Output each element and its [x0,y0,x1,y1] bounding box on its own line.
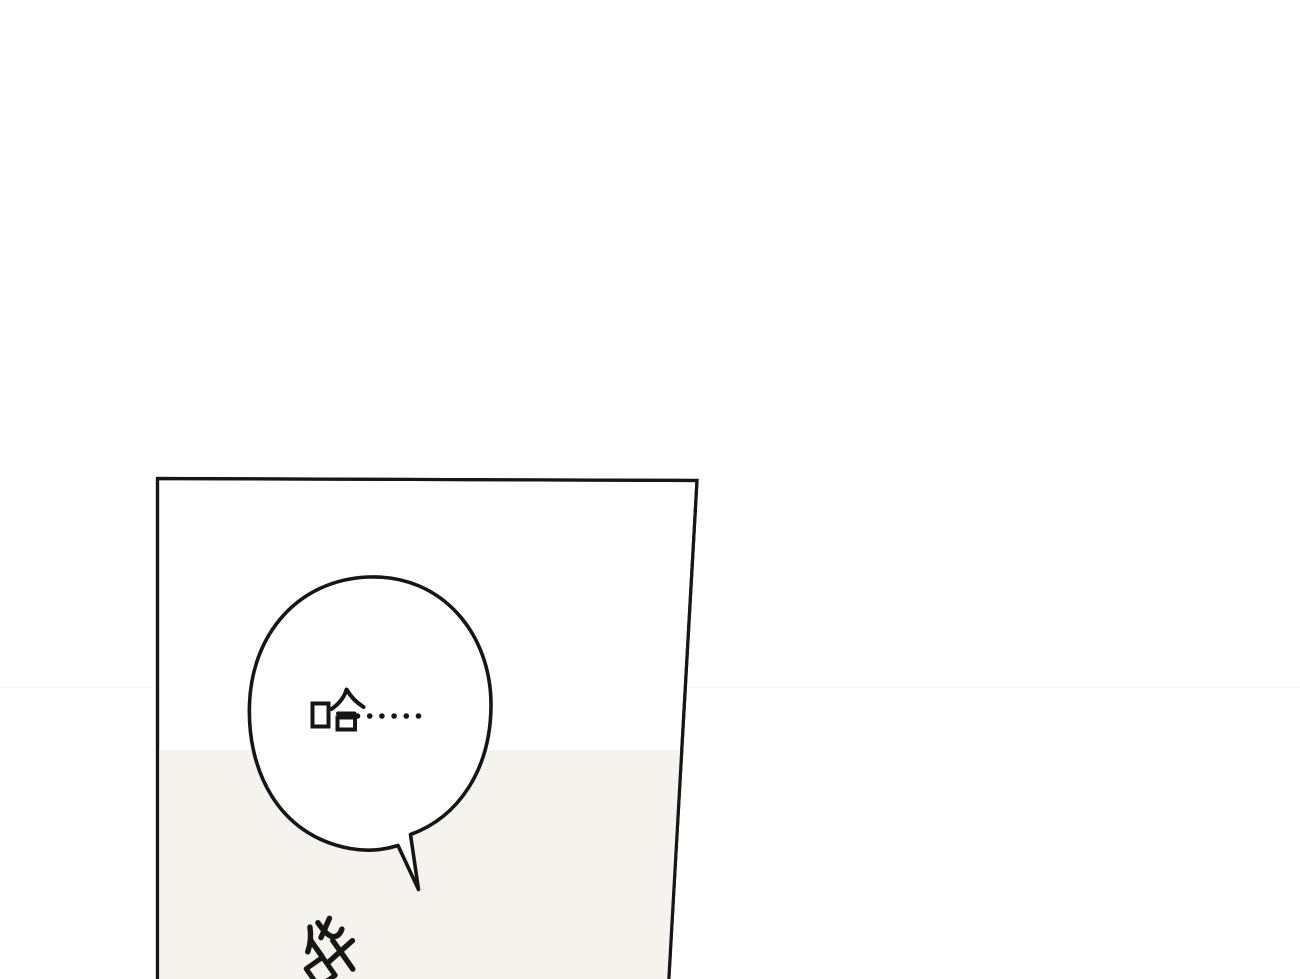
ellipsis-dot [416,713,422,719]
ellipsis-dot [391,713,397,719]
ellipsis-dot [404,713,410,719]
ellipsis-dot [355,713,361,719]
comic-art [0,0,1300,979]
ellipsis-dot [379,713,385,719]
comic-page: 哈…… 哗 [0,0,1300,979]
ellipsis-dot [367,713,373,719]
